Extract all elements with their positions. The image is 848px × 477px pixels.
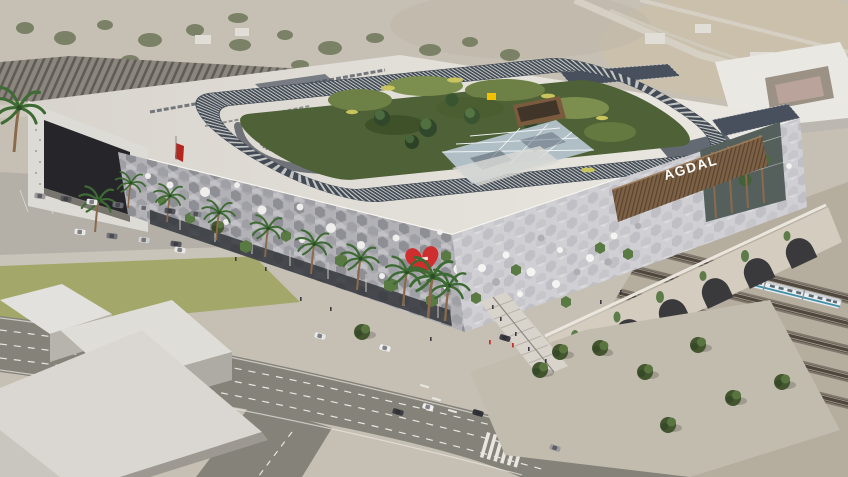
pedestrian-red-shirt	[512, 343, 514, 347]
yellow-sign	[487, 93, 496, 100]
pedestrian-red-shirt	[489, 340, 491, 344]
aerial-render-agdal-complex: A G D A L	[0, 0, 848, 477]
render-canvas: A G D A L	[0, 0, 848, 477]
